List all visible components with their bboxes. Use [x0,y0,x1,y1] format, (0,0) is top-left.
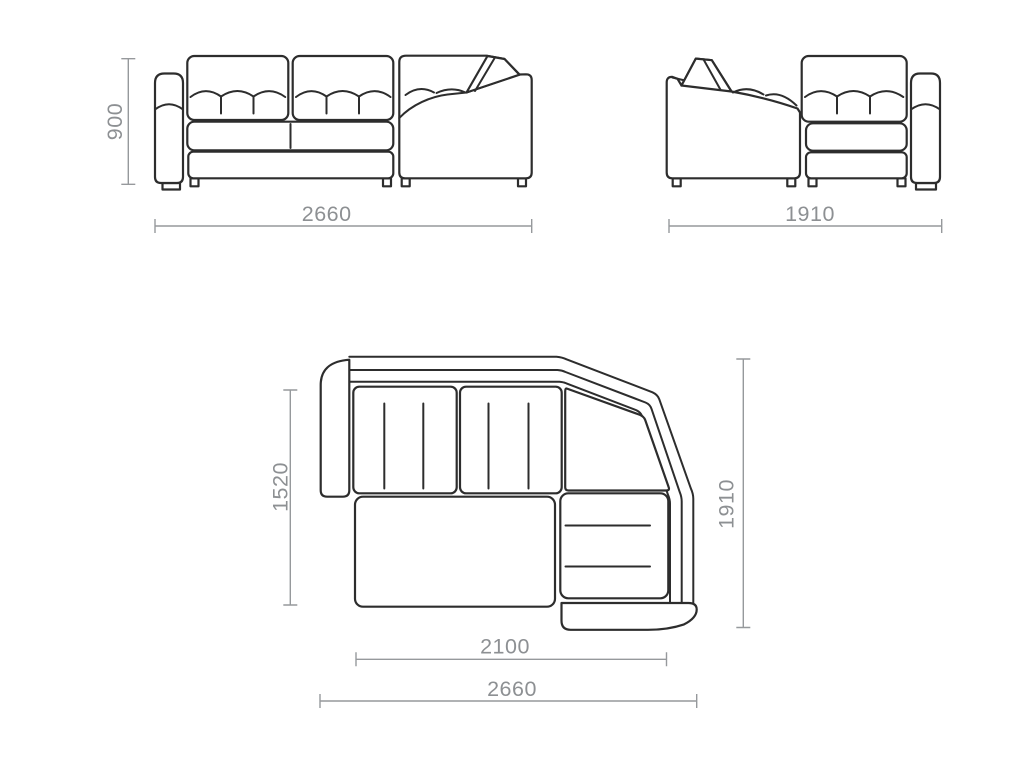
plan-depth-left-dim-label: 1520 [269,462,293,512]
plan-back-cushion-1 [353,387,456,494]
plan-corner-front-piece [562,603,697,630]
front-height-dim-label: 900 [103,103,127,140]
side-back-cushion [802,56,907,122]
front-left-armrest [155,74,183,184]
side-width-dimension: 1910 [669,202,942,233]
plan-back-cushion-2 [460,387,562,494]
front-feet [163,178,527,189]
side-width-dim-label: 1910 [785,202,835,226]
foot [809,178,817,186]
foot [673,178,681,186]
foot [518,178,526,186]
plan-depth-right-dim-label: 1910 [715,479,739,529]
foot [898,178,906,186]
foot [191,178,199,186]
front-back-cushion-1 [187,56,288,120]
plan-seat-width-dim-label: 2100 [480,635,530,659]
front-width-dimension: 2660 [155,202,532,233]
side-feet [673,178,936,189]
foot [787,178,795,186]
side-base [806,152,907,178]
side-view: 1910 [667,56,942,233]
front-base [188,152,393,179]
front-back-cushion-2 [293,56,394,120]
plan-corner-seat [560,493,668,598]
plan-depth-right-dimension: 1910 [715,359,751,628]
side-seat-cushion [806,123,907,150]
foot [402,178,410,186]
plan-total-width-dim-label: 2660 [487,677,537,701]
plan-view: 1520 1910 2100 2660 [269,357,751,708]
plan-main-seat [355,497,555,607]
plan-depth-left-dimension: 1520 [269,390,298,605]
plan-left-armrest [321,360,350,497]
foot [383,178,391,186]
sofa-technical-drawing: 900 2660 1910 [0,0,1024,768]
front-height-dimension: 900 [103,59,135,185]
side-right-armrest [911,74,940,184]
plan-total-width-dimension: 2660 [320,677,697,708]
front-width-dim-label: 2660 [302,202,352,226]
plan-seat-width-dimension: 2100 [356,635,667,667]
front-view: 900 2660 [103,56,532,233]
drawing-canvas: 900 2660 1910 [0,0,1024,768]
